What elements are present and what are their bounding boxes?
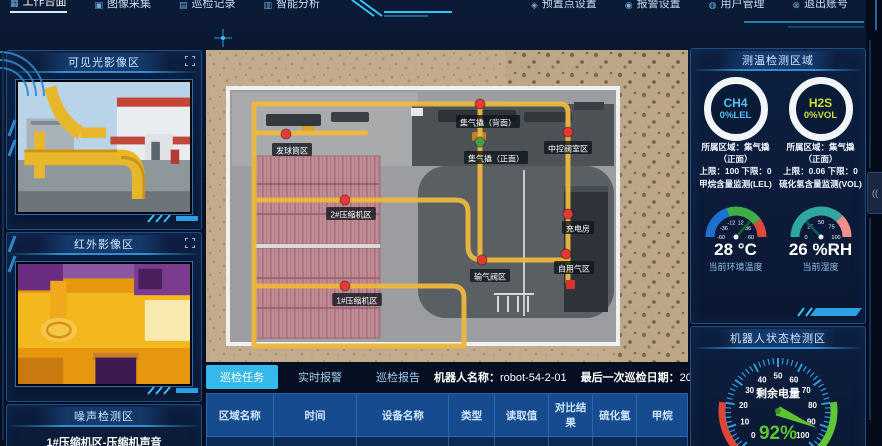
nav-item-2[interactable]: ▣图像采集 <box>95 0 152 13</box>
nav-item-icon: ⊗ <box>792 0 800 11</box>
robot-status-panel: 机器人状态检测区 0102030405060708090100剩余电量92% <box>690 326 866 446</box>
edge-circuit-lines <box>866 0 882 446</box>
tab-3[interactable]: 巡检报告 <box>362 365 434 389</box>
panel-title: 测温检测区域 <box>742 52 814 68</box>
svg-text:60: 60 <box>789 375 798 384</box>
nav-item-8[interactable]: ⊗退出账号 <box>792 0 848 13</box>
noise-header: 噪声检测区 <box>7 405 201 427</box>
dock-marker[interactable] <box>566 280 575 289</box>
nav-item-icon: ▣ <box>95 0 104 11</box>
robot-name-value: robot-54-2-01 <box>500 372 567 384</box>
infrared-header: 红外影像区 <box>7 233 201 255</box>
nav-item-label: 巡检记录 <box>192 0 236 11</box>
env-panel-header: 测温检测区域 <box>691 49 865 71</box>
gas-ring-CH4: CH40%LEL <box>704 77 768 141</box>
tab-1[interactable]: 巡检任务 <box>206 365 278 389</box>
cell: 3.38MPa <box>495 437 549 446</box>
map-marker[interactable] <box>281 129 291 139</box>
visible-light-panel: 可见光影像区 <box>6 50 202 230</box>
col-header: 时间 <box>273 394 357 437</box>
cell: 集气撬自用气压力表 <box>357 437 449 446</box>
svg-text:10: 10 <box>740 417 749 426</box>
noise-panel: 噪声检测区 1#压缩机区-压缩机声音 <box>6 404 202 446</box>
col-header: 区域名称 <box>207 394 274 437</box>
battery-label: 剩余电量 <box>756 386 800 400</box>
robot-panel-header: 机器人状态检测区 <box>691 327 865 349</box>
map-marker[interactable] <box>477 255 487 265</box>
tab-items: 巡检任务实时报警巡检报告 <box>206 365 434 389</box>
temperature-gauge: -60-36-12123660 <box>694 195 778 241</box>
svg-text:50: 50 <box>774 372 783 381</box>
panel-title: 噪声检测区 <box>74 408 134 424</box>
fullscreen-icon[interactable] <box>185 238 195 248</box>
station-compound <box>228 88 618 344</box>
nav-item-icon: ◍ <box>709 0 717 11</box>
nav-item-label: 预置点设置 <box>542 0 597 11</box>
nav-item-4[interactable]: ▥智能分析 <box>264 0 321 13</box>
gas-desc: 硫化氢含量监测(VOL) <box>779 179 862 191</box>
svg-text:-12: -12 <box>727 221 735 227</box>
svg-text:80: 80 <box>808 401 817 410</box>
svg-text:12: 12 <box>737 221 743 227</box>
col-header: 类型 <box>449 394 495 437</box>
map-marker[interactable] <box>563 209 573 219</box>
map-label: 充电房 <box>566 224 590 234</box>
battery-value: 92% <box>759 423 797 444</box>
cell: 2019-06-08 10:07:44 <box>273 437 357 446</box>
battery-gauge-wrap: 0102030405060708090100剩余电量92% <box>691 349 865 446</box>
env-detect-panel: 测温检测区域 CH40%LEL所属区域：集气撬（正面）上限：100 下限：0甲烷… <box>690 48 866 324</box>
panel-title: 机器人状态检测区 <box>730 330 826 346</box>
gas-value: 0%VOL <box>804 110 837 121</box>
gas-region: 所属区域：集气撬（正面） <box>779 142 863 165</box>
table-row[interactable]: 集气撬（正面）2019-06-08 10:07:44集气撬自用气压力表图像识别3… <box>207 437 688 446</box>
svg-text:30: 30 <box>745 386 754 395</box>
map-marker[interactable] <box>561 249 571 259</box>
nav-item-3[interactable]: ▤巡检记录 <box>179 0 236 13</box>
map-marker[interactable] <box>340 195 350 205</box>
col-header: 读取值 <box>495 394 549 437</box>
battery-gauge: 0102030405060708090100剩余电量92% <box>703 349 853 446</box>
humidity-label: 当前湿度 <box>802 260 838 273</box>
gas-name: CH4 <box>723 97 747 110</box>
nav-item-1[interactable]: ▦工作台面 <box>10 0 67 13</box>
svg-text:-36: -36 <box>719 226 727 232</box>
env-column-CH4: CH40%LEL所属区域：集气撬（正面）上限：100 下限：0甲烷含量监测(LE… <box>694 77 778 273</box>
nav-item-label: 报警设置 <box>637 0 681 11</box>
map-marker[interactable] <box>340 281 350 291</box>
gas-region: 所属区域：集气撬（正面） <box>694 142 778 165</box>
top-nav: ▦工作台面▣图像采集▤巡检记录▥智能分析◈预置点设置◉报警设置◍用户管理⊗退出账… <box>0 0 876 13</box>
infrared-video[interactable] <box>15 261 193 387</box>
map-marker[interactable] <box>475 137 485 147</box>
svg-text:100: 100 <box>796 431 810 440</box>
last-date-label: 最后一次巡检日期： <box>581 372 680 384</box>
nav-item-label: 图像采集 <box>107 0 151 11</box>
visible-light-image <box>18 82 190 212</box>
nav-item-label: 退出账号 <box>804 0 848 11</box>
svg-text:0: 0 <box>751 431 756 440</box>
gas-value: 0%LEL <box>720 110 752 121</box>
gas-limits: 上限：0.06 下限：0 <box>783 166 858 178</box>
nav-item-label: 用户管理 <box>720 0 764 11</box>
env-column-H2S: H2S0%VOL所属区域：集气撬（正面）上限：0.06 下限：0硫化氢含量监测(… <box>779 77 863 273</box>
cell: 0 <box>593 437 637 446</box>
col-header: 硫化氢 <box>593 394 637 437</box>
nav-item-icon: ◉ <box>625 0 633 11</box>
dashboard-root: ▦工作台面▣图像采集▤巡检记录▥智能分析◈预置点设置◉报警设置◍用户管理⊗退出账… <box>0 0 882 446</box>
map-label: 自用气区 <box>558 264 590 274</box>
nav-item-7[interactable]: ◍用户管理 <box>709 0 765 13</box>
svg-text:40: 40 <box>758 375 767 384</box>
panel-title: 可见光影像区 <box>68 54 140 70</box>
nav-item-label: 智能分析 <box>276 0 320 11</box>
col-header: 甲烷 <box>637 394 688 437</box>
humidity-gauge: 0255075100 <box>779 195 863 241</box>
gas-desc: 甲烷含量监测(LEL) <box>699 179 772 191</box>
gas-limits: 上限：100 下限：0 <box>699 166 771 178</box>
nav-item-icon: ◈ <box>531 0 538 11</box>
map-marker[interactable] <box>563 127 573 137</box>
infrared-image <box>18 264 190 384</box>
map-label: 发球筒区 <box>276 146 308 156</box>
temperature-label: 当前环境温度 <box>708 260 762 273</box>
cell: 集气撬（正面） <box>207 437 274 446</box>
map-label: 1#压缩机区 <box>337 296 378 306</box>
env-columns: CH40%LEL所属区域：集气撬（正面）上限：100 下限：0甲烷含量监测(LE… <box>691 71 865 273</box>
infrared-panel: 红外影像区 <box>6 232 202 402</box>
visible-light-header: 可见光影像区 <box>7 51 201 73</box>
right-edge-strip: (( <box>866 0 882 446</box>
svg-text:50: 50 <box>817 220 823 226</box>
nav-item-icon: ▥ <box>264 0 273 11</box>
fullscreen-icon[interactable] <box>185 56 195 66</box>
svg-text:70: 70 <box>802 386 811 395</box>
nav-item-icon: ▦ <box>10 0 19 9</box>
sound-icon: (( <box>872 188 878 198</box>
inspection-table: 区域名称时间设备名称类型读取值对比结果硫化氢甲烷 集气撬（正面）2019-06-… <box>206 393 688 446</box>
map-label: 2#压缩机区 <box>331 210 372 220</box>
humidity-value: 26 %RH <box>789 241 852 259</box>
site-map[interactable]: 集气撬（背面）集气撬（正面）中控阀室区发球筒区2#压缩机区1#压缩机区充电房自用… <box>206 50 688 362</box>
nav-item-icon: ▤ <box>179 0 188 11</box>
map-label: 集气撬（背面） <box>460 118 516 128</box>
gas-ring-H2S: H2S0%VOL <box>789 77 853 141</box>
map-label: 集气撬（正面） <box>468 154 524 164</box>
compressor-buildings <box>254 156 380 338</box>
map-label: 中控阀室区 <box>548 144 588 154</box>
col-header: 对比结果 <box>548 394 593 437</box>
tab-2[interactable]: 实时报警 <box>284 365 356 389</box>
map-label: 输气阀区 <box>474 272 506 282</box>
visible-light-video[interactable] <box>15 79 193 215</box>
svg-text:20: 20 <box>739 401 748 410</box>
svg-text:75: 75 <box>828 224 834 230</box>
map-marker[interactable] <box>475 99 485 109</box>
noise-source-label: 1#压缩机区-压缩机声音 <box>7 434 201 446</box>
sound-toggle-button[interactable]: (( <box>867 172 882 214</box>
panel-title: 红外影像区 <box>74 236 134 252</box>
bottom-tabbar: 巡检任务实时报警巡检报告 机器人名称：robot-54-2-01 最后一次巡检日… <box>206 364 688 390</box>
gas-name: H2S <box>809 97 832 110</box>
cell-result <box>548 437 593 446</box>
site-map-svg: 集气撬（背面）集气撬（正面）中控阀室区发球筒区2#压缩机区1#压缩机区充电房自用… <box>206 50 688 362</box>
temperature-value: 28 °C <box>714 241 757 259</box>
nav-item-5[interactable]: ◈预置点设置 <box>531 0 597 13</box>
cell: 图像识别 <box>449 437 495 446</box>
cell: 0 <box>637 437 688 446</box>
nav-item-6[interactable]: ◉报警设置 <box>625 0 681 13</box>
col-header: 设备名称 <box>357 394 449 437</box>
robot-name-label: 机器人名称： <box>434 372 500 384</box>
nav-item-label: 工作台面 <box>23 0 67 9</box>
